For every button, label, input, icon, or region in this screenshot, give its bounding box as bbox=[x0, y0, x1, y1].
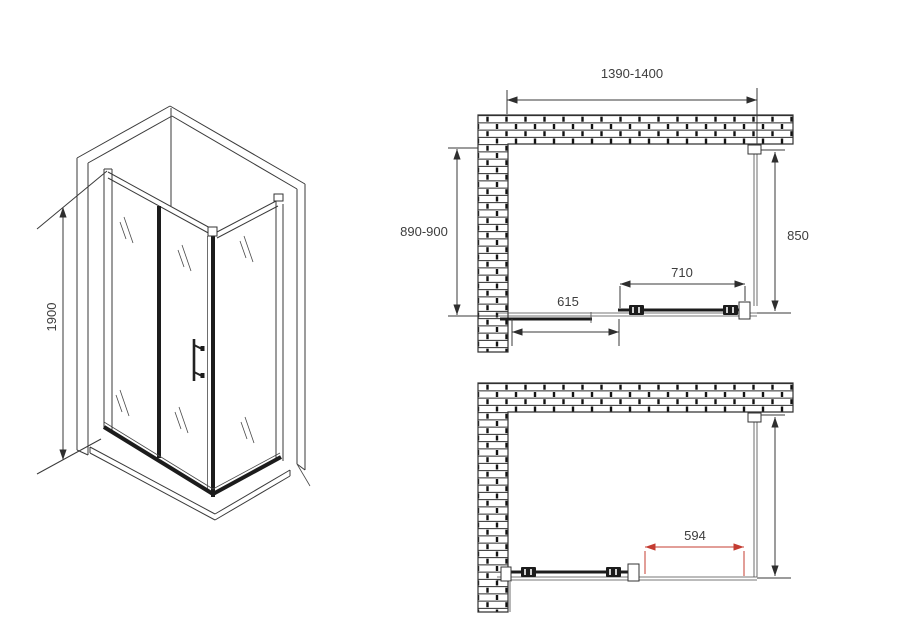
height-dimension: 1900 bbox=[37, 171, 107, 474]
side-panel-bottom-plan bbox=[748, 413, 761, 577]
end-bracket bbox=[628, 564, 639, 581]
isometric-view: 1900 bbox=[37, 106, 310, 520]
door-track-top-plan bbox=[497, 302, 757, 323]
enclosure-frame bbox=[104, 169, 283, 497]
end-bracket bbox=[739, 302, 750, 319]
door-handle bbox=[194, 339, 205, 381]
corner-bracket bbox=[208, 227, 217, 236]
top-plan-view: 1390-1400 890-900 850 bbox=[400, 66, 809, 352]
door-dimension: 710 bbox=[620, 265, 745, 308]
side-panel-dimension: 850 bbox=[757, 150, 809, 313]
wall-bracket bbox=[748, 145, 761, 154]
door-track-bottom-plan bbox=[497, 564, 757, 612]
glass-marks bbox=[116, 217, 254, 443]
roller bbox=[606, 567, 621, 577]
arrow-right-icon bbox=[734, 543, 745, 550]
depth-dimension-label: 890-900 bbox=[400, 224, 448, 239]
roller bbox=[723, 305, 738, 315]
roller bbox=[629, 305, 644, 315]
side-post-cap bbox=[274, 194, 283, 201]
technical-drawing: 1900 1390-1400 890-900 850 bbox=[0, 0, 900, 636]
opening-dimension: 594 bbox=[645, 528, 744, 576]
panel-height-dimension bbox=[757, 415, 791, 578]
opening-dimension-label: 594 bbox=[684, 528, 706, 543]
arrow-right-icon bbox=[747, 96, 758, 103]
arrow-left-icon bbox=[645, 543, 656, 550]
side-panel-top-plan bbox=[748, 145, 761, 306]
height-dimension-label: 1900 bbox=[44, 303, 59, 332]
wall-profile bbox=[501, 567, 511, 581]
shower-tray bbox=[90, 447, 290, 520]
arrow-left-icon bbox=[507, 96, 518, 103]
bottom-plan-view: 594 bbox=[478, 383, 793, 612]
roller bbox=[521, 567, 536, 577]
door-dimension-label: 710 bbox=[671, 265, 693, 280]
side-panel-dimension-label: 850 bbox=[787, 228, 809, 243]
shower-enclosure-dimension-drawing: 1900 1390-1400 890-900 850 bbox=[0, 0, 900, 636]
wall-bracket bbox=[748, 413, 761, 422]
fixed-panel-dimension-label: 615 bbox=[557, 294, 579, 309]
arrow-up-icon bbox=[59, 207, 66, 218]
width-dimension-label: 1390-1400 bbox=[601, 66, 663, 81]
